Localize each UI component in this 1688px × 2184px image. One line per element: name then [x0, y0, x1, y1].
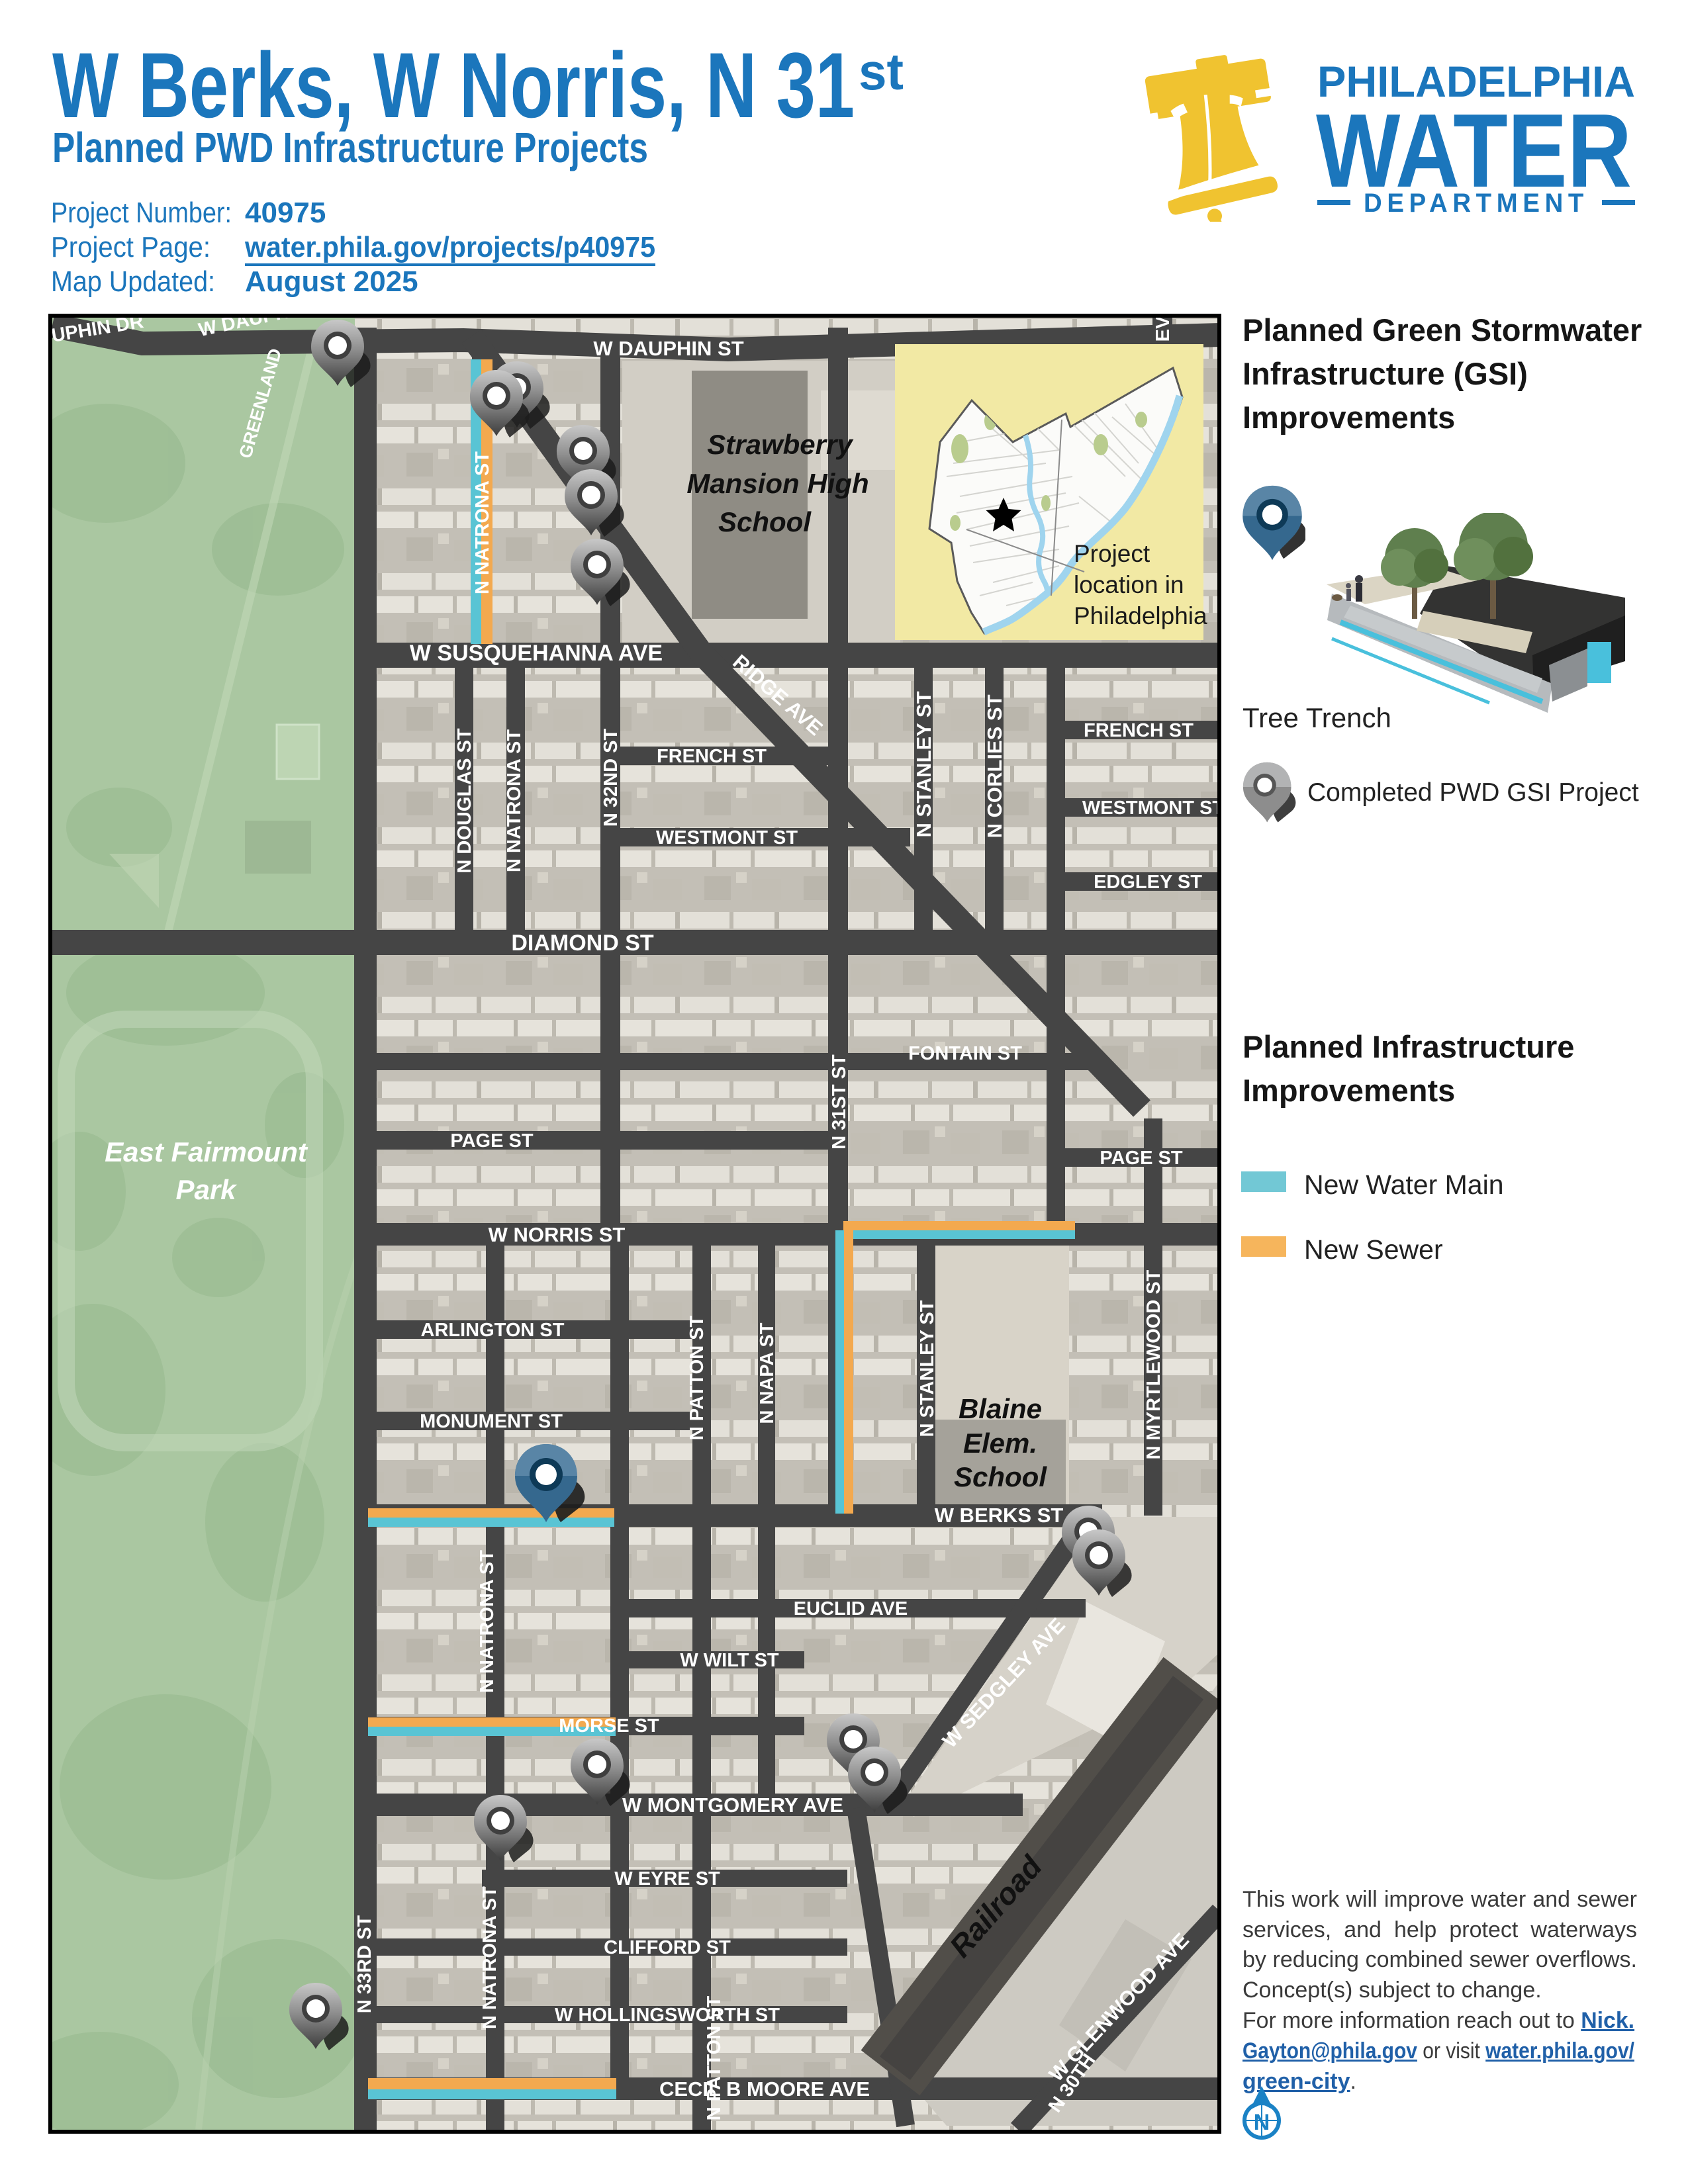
- svg-text:Blaine: Blaine: [959, 1393, 1042, 1424]
- svg-text:WESTMONT ST: WESTMONT ST: [1082, 797, 1217, 819]
- svg-text:W NORRIS ST: W NORRIS ST: [489, 1223, 626, 1246]
- svg-text:FONTAIN ST: FONTAIN ST: [908, 1043, 1022, 1064]
- svg-text:EUCLID AVE: EUCLID AVE: [794, 1598, 908, 1619]
- svg-text:W Berks, W Norris, N 31: W Berks, W Norris, N 31: [52, 33, 855, 137]
- svg-text:DEPARTMENT: DEPARTMENT: [1364, 189, 1589, 218]
- svg-text:W EYRE ST: W EYRE ST: [614, 1868, 720, 1889]
- svg-text:N STANLEY ST: N STANLEY ST: [912, 691, 935, 837]
- svg-text:N PATTON ST: N PATTON ST: [704, 1995, 725, 2120]
- svg-text:CLIFFORD ST: CLIFFORD ST: [604, 1937, 731, 1958]
- svg-text:WESTMONT ST: WESTMONT ST: [656, 827, 798, 848]
- svg-text:East Fairmount: East Fairmount: [105, 1136, 308, 1167]
- svg-text:W SUSQUEHANNA AVE: W SUSQUEHANNA AVE: [410, 641, 663, 666]
- svg-text:N MYRTLEWOOD ST: N MYRTLEWOOD ST: [1143, 1269, 1164, 1459]
- svg-text:N STANLEY ST: N STANLEY ST: [917, 1300, 938, 1437]
- svg-text:N NAPA ST: N NAPA ST: [757, 1322, 778, 1424]
- svg-text:N PATTON ST: N PATTON ST: [686, 1315, 708, 1440]
- svg-text:N NATRONA ST: N NATRONA ST: [472, 451, 493, 594]
- svg-text:DIAMOND ST: DIAMOND ST: [511, 931, 654, 956]
- svg-text:August 2025: August 2025: [245, 265, 418, 298]
- svg-text:Planned PWD Infrastructure Pro: Planned PWD Infrastructure Projects: [52, 124, 648, 171]
- svg-text:PAGE ST: PAGE ST: [450, 1130, 533, 1152]
- svg-text:Project: Project: [1074, 540, 1150, 567]
- svg-text:N NATRONA ST: N NATRONA ST: [477, 1550, 498, 1693]
- svg-text:Strawberry: Strawberry: [707, 429, 854, 460]
- svg-text:CECIL B MOORE AVE: CECIL B MOORE AVE: [659, 2077, 870, 2101]
- svg-text:W HOLLINGSWORTH ST: W HOLLINGSWORTH ST: [555, 2005, 780, 2026]
- svg-text:W MONTGOMERY AVE: W MONTGOMERY AVE: [622, 1794, 843, 1817]
- svg-text:PAGE ST: PAGE ST: [1100, 1148, 1182, 1169]
- svg-text:N: N: [1254, 2110, 1270, 2135]
- svg-text:N NATRONA ST: N NATRONA ST: [479, 1886, 500, 2029]
- svg-text:Map Updated:: Map Updated:: [51, 265, 215, 298]
- svg-text:School: School: [718, 506, 812, 537]
- svg-text:W DAUPHIN ST: W DAUPHIN ST: [593, 337, 743, 360]
- svg-text:Project Page:: Project Page:: [51, 231, 211, 263]
- svg-text:Philadelphia: Philadelphia: [1074, 602, 1207, 629]
- svg-text:40975: 40975: [245, 197, 326, 229]
- svg-text:N DOUGLAS ST: N DOUGLAS ST: [454, 728, 475, 873]
- svg-text:MONUMENT ST: MONUMENT ST: [420, 1411, 563, 1432]
- svg-text:EDGLEY ST: EDGLEY ST: [1094, 872, 1202, 893]
- svg-text:N 31ST ST: N 31ST ST: [829, 1054, 850, 1150]
- svg-text:Park: Park: [175, 1174, 238, 1205]
- svg-text:EV: EV: [1152, 318, 1174, 341]
- svg-text:W BERKS ST: W BERKS ST: [935, 1504, 1064, 1527]
- svg-text:ARLINGTON ST: ARLINGTON ST: [421, 1320, 565, 1341]
- svg-text:Mansion High: Mansion High: [686, 468, 868, 499]
- svg-text:FRENCH ST: FRENCH ST: [1084, 720, 1194, 741]
- svg-text:MORSE ST: MORSE ST: [559, 1715, 659, 1737]
- svg-text:Elem.: Elem.: [963, 1428, 1037, 1459]
- svg-text:School: School: [954, 1461, 1047, 1492]
- svg-text:N NATRONA ST: N NATRONA ST: [504, 729, 525, 872]
- svg-text:water.phila.gov/projects/p4097: water.phila.gov/projects/p40975: [244, 231, 655, 263]
- svg-text:N 33RD ST: N 33RD ST: [354, 1915, 375, 2014]
- svg-text:N 32ND ST: N 32ND ST: [600, 729, 622, 827]
- svg-text:location in: location in: [1074, 571, 1184, 598]
- svg-text:N CORLIES ST: N CORLIES ST: [983, 694, 1006, 838]
- svg-text:W WILT ST: W WILT ST: [680, 1650, 779, 1671]
- svg-text:Project Number:: Project Number:: [51, 197, 232, 229]
- svg-text:FRENCH ST: FRENCH ST: [657, 746, 767, 767]
- svg-text:st: st: [859, 42, 904, 101]
